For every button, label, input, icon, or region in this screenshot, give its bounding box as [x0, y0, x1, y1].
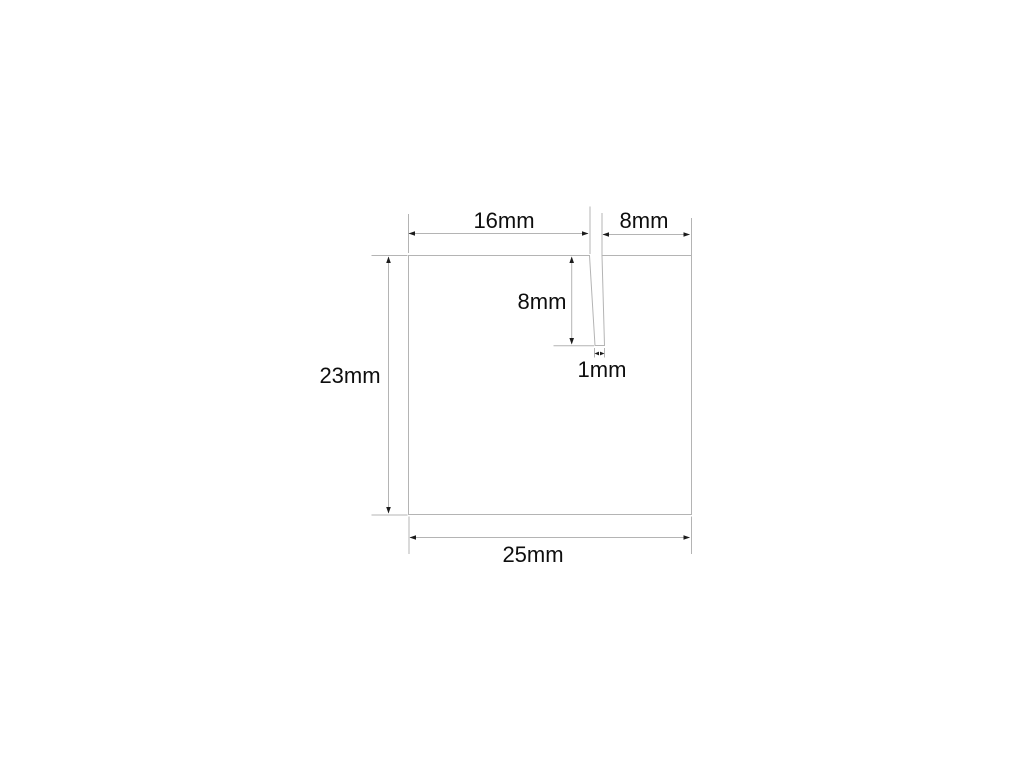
label-23mm: 23mm — [319, 365, 380, 387]
arrow-slot-width-right — [600, 352, 605, 356]
label-16mm: 16mm — [473, 210, 534, 232]
arrow-25mm-left — [410, 535, 417, 540]
arrow-25mm-right — [684, 535, 691, 540]
arrow-23mm-bottom — [386, 507, 391, 514]
arrow-8mm-top-right — [684, 232, 691, 237]
arrow-23mm-top — [386, 257, 391, 264]
arrow-slot-width-left — [595, 352, 600, 356]
arrow-16mm-right — [582, 231, 589, 236]
arrow-slot-depth-top — [569, 257, 574, 264]
drawing-canvas: 16mm 8mm 8mm 1mm 23mm 25mm — [0, 0, 1024, 768]
label-25mm: 25mm — [502, 544, 563, 566]
arrow-8mm-top-left — [603, 232, 610, 237]
arrow-slot-depth-bottom — [569, 338, 574, 345]
arrow-16mm-left — [409, 231, 416, 236]
label-8mm-top: 8mm — [620, 210, 669, 232]
label-1mm-slot-width: 1mm — [578, 359, 627, 381]
dimension-drawing-svg — [0, 0, 1024, 768]
label-8mm-slot-depth: 8mm — [518, 291, 567, 313]
